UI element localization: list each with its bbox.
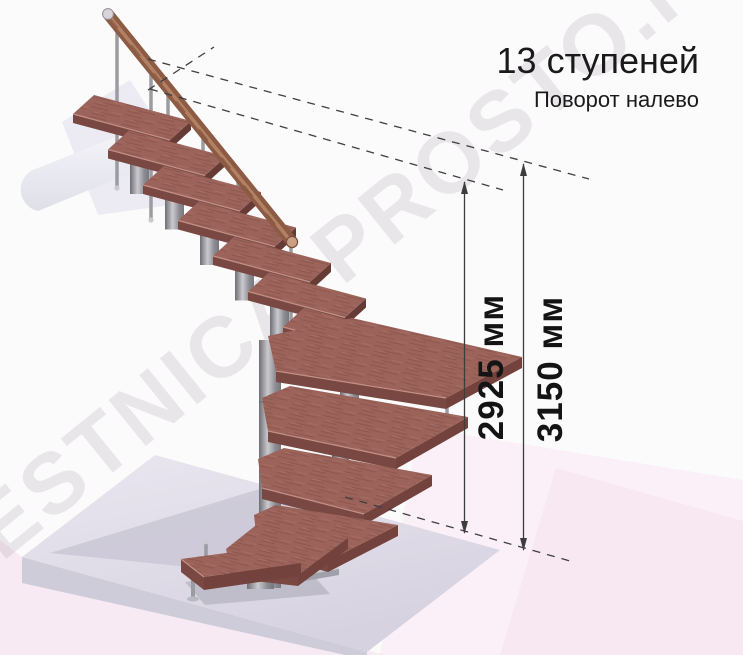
staircase-product-image: LESTNICA-PROSTO.RU	[0, 0, 743, 655]
handrail-top-cap	[103, 9, 114, 20]
dimension-label-3150: 3150 мм	[531, 296, 571, 442]
steps-count-title: 13 ступеней	[497, 42, 699, 80]
turn-direction-subtitle: Поворот налево	[534, 87, 699, 113]
handrail-end-cap	[286, 236, 297, 247]
step-leg-foot	[187, 597, 199, 602]
dimension-label-2925: 2925 мм	[472, 294, 512, 440]
